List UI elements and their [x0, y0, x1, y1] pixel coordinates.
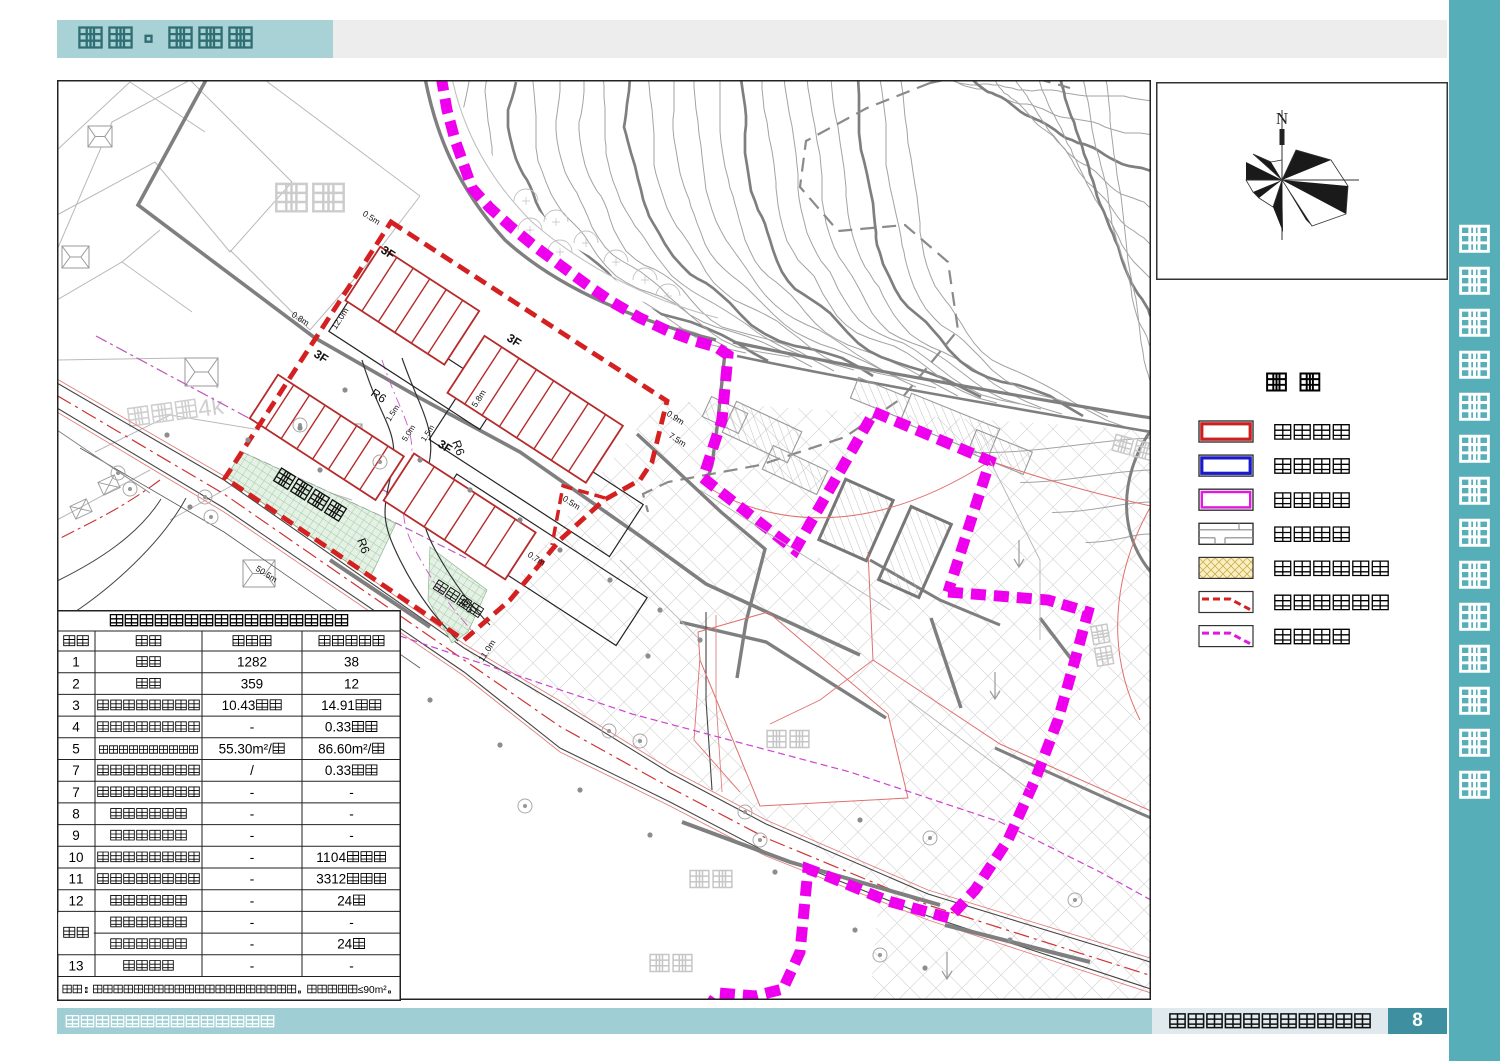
- svg-text:359: 359: [241, 676, 264, 691]
- svg-text:24: 24: [337, 937, 352, 952]
- svg-text:-: -: [250, 915, 255, 930]
- svg-text:-: -: [349, 785, 354, 800]
- svg-text:-: -: [349, 958, 354, 973]
- svg-text:1.5m: 1.5m: [384, 403, 401, 423]
- svg-text:7: 7: [72, 785, 80, 800]
- svg-text:-: -: [250, 850, 255, 865]
- svg-text:86.60m²/: 86.60m²/: [318, 741, 372, 756]
- svg-text:-: -: [250, 720, 255, 735]
- svg-text:7: 7: [72, 763, 80, 778]
- svg-text:11: 11: [69, 872, 84, 887]
- svg-text:3312: 3312: [316, 872, 346, 887]
- svg-text:5.0m: 5.0m: [400, 423, 417, 443]
- svg-text:-: -: [250, 893, 255, 908]
- svg-text:55.30m²/: 55.30m²/: [219, 741, 273, 756]
- svg-text:-: -: [250, 958, 255, 973]
- svg-text:3F: 3F: [504, 331, 523, 350]
- svg-text:N: N: [1276, 109, 1288, 128]
- svg-text:4: 4: [72, 720, 80, 735]
- svg-text:38: 38: [344, 655, 359, 670]
- svg-text:-: -: [250, 828, 255, 843]
- svg-text:1282: 1282: [237, 655, 267, 670]
- svg-text:R6: R6: [368, 386, 389, 406]
- svg-text:24: 24: [337, 893, 352, 908]
- svg-text:8: 8: [72, 807, 80, 822]
- svg-text:0.33: 0.33: [325, 763, 351, 778]
- svg-text:12: 12: [344, 676, 359, 691]
- svg-text:0.33: 0.33: [325, 720, 351, 735]
- svg-text:-: -: [349, 915, 354, 930]
- svg-text:-: -: [250, 785, 255, 800]
- svg-text:1104: 1104: [316, 850, 346, 865]
- svg-text:5: 5: [72, 741, 80, 756]
- svg-text:2: 2: [72, 676, 80, 691]
- svg-text:/: /: [250, 763, 254, 778]
- svg-text:0.5m: 0.5m: [361, 208, 382, 227]
- svg-text:≤90m²: ≤90m²: [358, 985, 387, 996]
- svg-text:4k: 4k: [196, 393, 226, 423]
- svg-text:14.91: 14.91: [321, 698, 355, 713]
- svg-text:-: -: [250, 937, 255, 952]
- svg-text:-: -: [250, 872, 255, 887]
- svg-text:1: 1: [72, 655, 80, 670]
- svg-text:10.43: 10.43: [222, 698, 256, 713]
- svg-text:10: 10: [69, 850, 84, 865]
- svg-text:-: -: [349, 807, 354, 822]
- svg-text:12: 12: [69, 893, 84, 908]
- svg-text:3F: 3F: [311, 347, 330, 366]
- svg-text:3: 3: [72, 698, 80, 713]
- svg-text:-: -: [349, 828, 354, 843]
- svg-text:13: 13: [69, 958, 84, 973]
- svg-text:-: -: [250, 807, 255, 822]
- svg-text:9: 9: [72, 828, 80, 843]
